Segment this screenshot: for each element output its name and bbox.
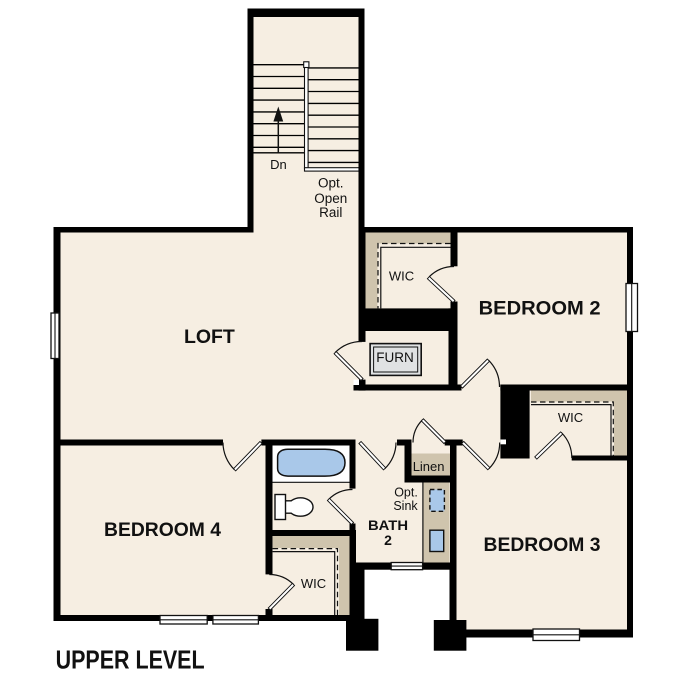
svg-text:UPPER LEVEL: UPPER LEVEL [56, 644, 205, 674]
svg-text:BATH: BATH [368, 517, 408, 533]
svg-text:WIC: WIC [389, 269, 414, 284]
svg-text:WIC: WIC [558, 410, 583, 425]
svg-text:Linen: Linen [413, 459, 445, 474]
svg-text:Dn: Dn [270, 157, 287, 172]
svg-text:Opt.: Opt. [394, 486, 418, 500]
svg-text:LOFT: LOFT [184, 326, 235, 348]
svg-text:WIC: WIC [301, 576, 326, 591]
svg-text:BEDROOM 3: BEDROOM 3 [484, 534, 601, 556]
svg-text:Open: Open [314, 191, 347, 206]
svg-text:BEDROOM 4: BEDROOM 4 [104, 519, 221, 541]
svg-text:2: 2 [384, 532, 392, 548]
svg-text:Opt.: Opt. [318, 176, 344, 191]
svg-text:Rail: Rail [319, 205, 342, 220]
svg-text:BEDROOM 2: BEDROOM 2 [479, 298, 601, 320]
svg-text:FURN: FURN [376, 350, 414, 365]
svg-text:Sink: Sink [393, 499, 418, 513]
